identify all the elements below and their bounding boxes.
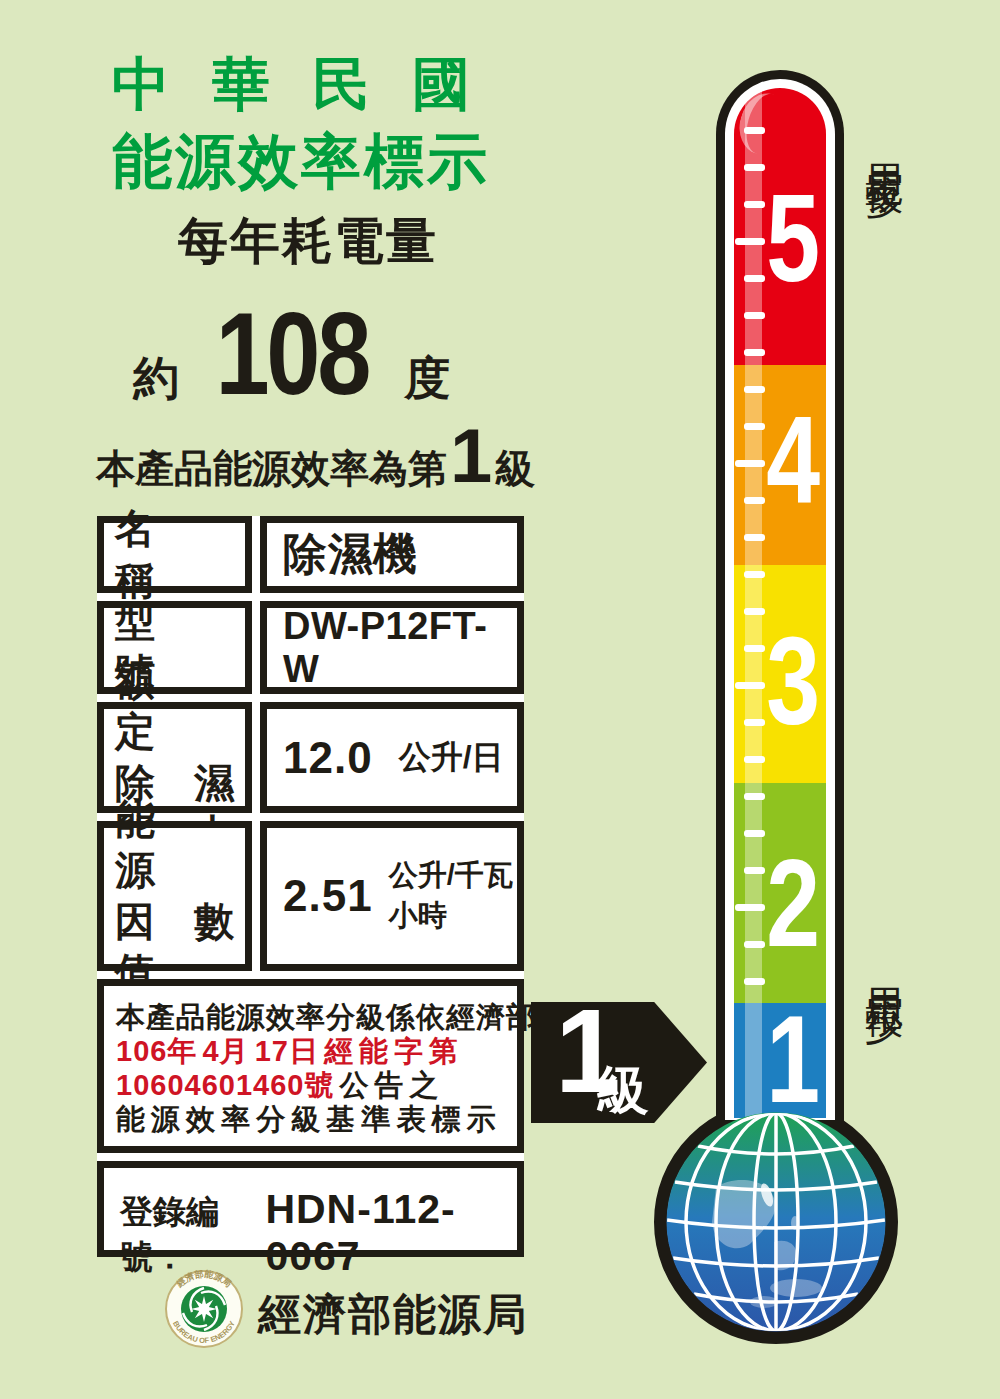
thermometer-tick (744, 719, 765, 726)
grade-statement-value: 1 (450, 412, 492, 499)
thermometer-tick (744, 497, 765, 504)
notice-cell: 本產品能源效率分級係依經濟部 106年 4月 17日 經 能 字 第 10604… (97, 979, 524, 1153)
row-factor-label-cell: 能 源 因數值 (97, 821, 252, 971)
grade-statement-prefix: 本產品能源效率為第 (96, 442, 447, 496)
thermometer-scale: 54321 (734, 88, 826, 1118)
thermometer-tick (744, 423, 765, 430)
thermometer-tick (735, 460, 765, 467)
annual-consumption-heading: 每年耗電量 (178, 208, 438, 275)
thermometer-tick (744, 571, 765, 578)
notice-line3-tail: 公 告 之 (334, 1069, 439, 1101)
thermometer-tick (735, 682, 765, 689)
thermometer-tick (744, 978, 765, 985)
grade-arrow-unit: 級 (597, 1056, 649, 1126)
row-name-label: 名 稱 (115, 503, 234, 605)
factor-value: 2.51 (283, 871, 373, 921)
annual-consumption-line: 約 108 度 (133, 287, 451, 421)
notice-line3: 10604601460號 公 告 之 (116, 1068, 505, 1102)
thermometer-tick (744, 867, 765, 874)
label-less-power: 用電較少 (858, 958, 909, 982)
thermometer-tick (735, 238, 765, 245)
consumption-value: 108 (216, 287, 368, 421)
notice-line4: 能 源 效 率 分 級 基 準 表 標 示 (116, 1102, 505, 1136)
row-factor-label-line1: 能 源 (115, 794, 234, 896)
thermometer-tick (744, 127, 765, 134)
thermometer-tick (744, 201, 765, 208)
factor-unit: 公升/千瓦小時 (389, 856, 517, 936)
model-number: DW-P12FT-W (283, 605, 517, 691)
row-factor-value-cell: 2.51 公升/千瓦小時 (260, 821, 524, 971)
thermometer-level-5-number: 5 (766, 176, 820, 300)
globe-icon (646, 1092, 906, 1352)
thermometer-tick (744, 164, 765, 171)
grade-statement-suffix: 級 (495, 441, 535, 496)
thermometer-tick (744, 830, 765, 837)
thermometer-tick (744, 941, 765, 948)
country-title: 中 華 民 國 (112, 46, 483, 124)
row-capacity-value-cell: 12.0 公升/日 (260, 702, 524, 813)
consumption-prefix: 約 (133, 348, 179, 410)
thermometer-tick (744, 275, 765, 282)
row-model-value-cell: DW-P12FT-W (260, 601, 524, 694)
label-more-power: 用電較多 (858, 134, 909, 158)
row-name-value-cell: 除濕機 (260, 516, 524, 593)
thermometer-level-4-number: 4 (766, 397, 820, 521)
label-title: 能源效率標示 (112, 122, 490, 203)
row-name-label-cell: 名 稱 (97, 516, 252, 593)
notice-line3-number: 10604601460號 (116, 1069, 334, 1101)
registration-cell: 登錄編號： HDN-112-0067 (97, 1161, 524, 1257)
capacity-unit: 公升/日 (399, 736, 504, 780)
thermometer-tick (744, 645, 765, 652)
thermometer-tick (744, 534, 765, 541)
grade-statement-line: 本產品能源效率為第 1 級 (96, 412, 535, 499)
notice-line1: 本產品能源效率分級係依經濟部 (116, 1000, 505, 1034)
thermometer-tick (744, 312, 765, 319)
thermometer-tick (744, 756, 765, 763)
capacity-value: 12.0 (283, 733, 373, 783)
thermometer-tick (735, 904, 765, 911)
thermometer-tick (744, 349, 765, 356)
thermometer-tick (744, 608, 765, 615)
registration-number: HDN-112-0067 (265, 1186, 517, 1280)
notice-line2: 106年 4月 17日 經 能 字 第 (116, 1034, 505, 1068)
spec-table: 名 稱 除濕機 型 號 DW-P12FT-W 額 定 除濕能力 12.0 公升/… (97, 516, 524, 1257)
product-name: 除濕機 (283, 525, 418, 584)
consumption-unit: 度 (405, 348, 451, 410)
agency-name: 經濟部能源局 (258, 1286, 528, 1344)
thermometer-tick (744, 793, 765, 800)
energy-efficiency-label: 中 華 民 國 能源效率標示 每年耗電量 約 108 度 本產品能源效率為第 1… (0, 0, 1000, 1399)
row-capacity-label-line1: 額 定 (115, 655, 234, 757)
thermometer-level-3-number: 3 (766, 619, 820, 743)
thermometer-tick (744, 386, 765, 393)
thermometer-level-2-number: 2 (766, 841, 820, 965)
bureau-of-energy-seal: 經濟部能源局 BUREAU OF ENERGY (160, 1262, 248, 1356)
